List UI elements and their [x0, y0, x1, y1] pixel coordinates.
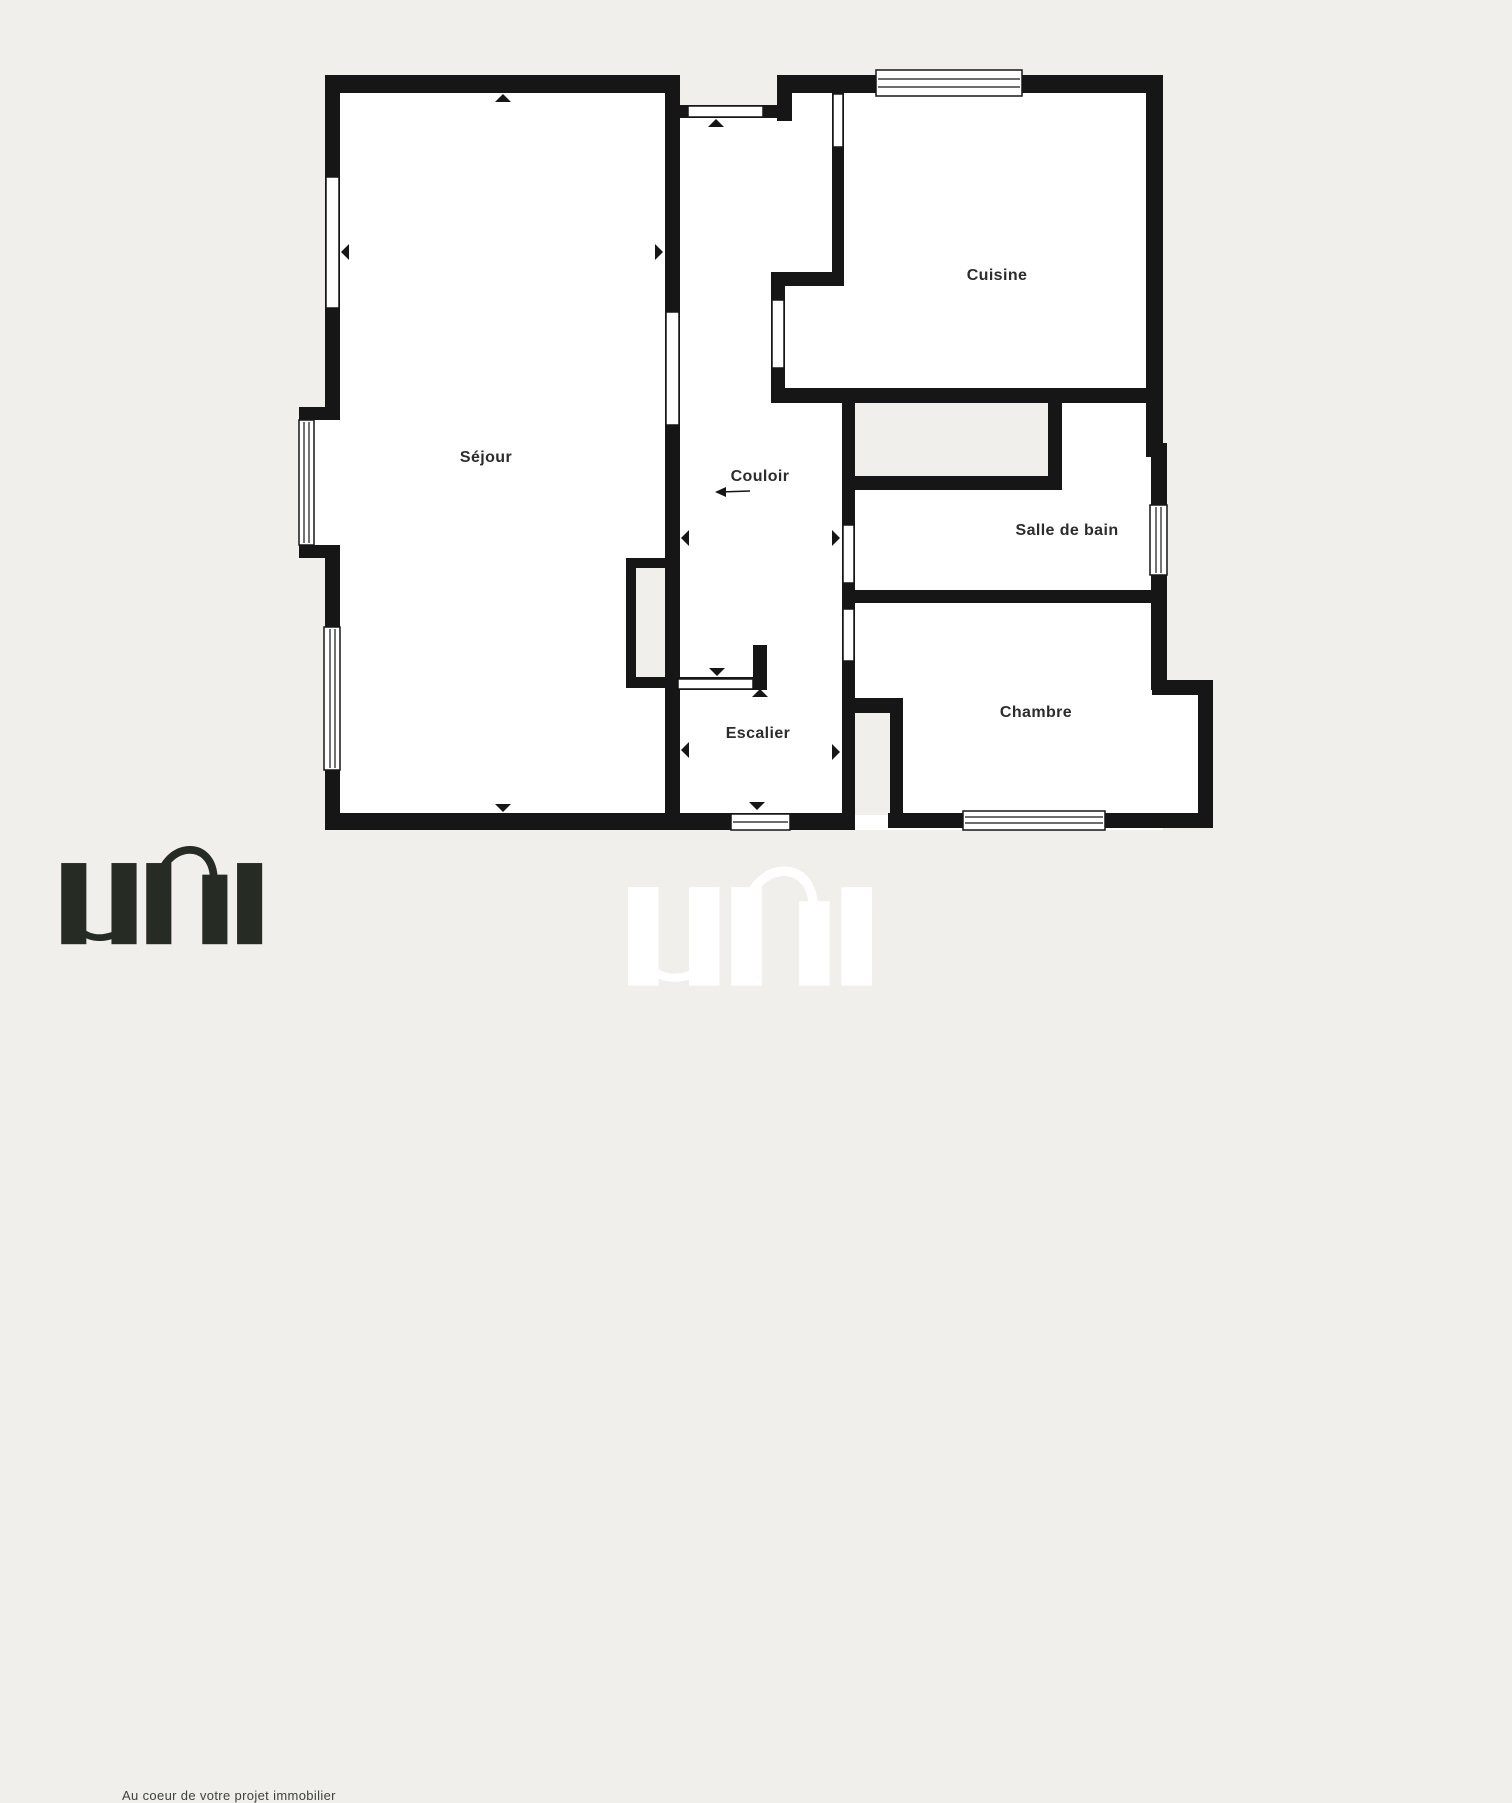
window-symbol-salle-de-bain [1150, 505, 1167, 575]
wall-closet-left [626, 558, 636, 688]
wall-couloir-right-lower [842, 398, 855, 813]
room-label-chambre: Chambre [1000, 704, 1072, 722]
door-opening-escalier [678, 679, 753, 689]
room-fill-areas [299, 75, 1213, 830]
agency-logo: uni Au coeur de votre projet immobilier [60, 836, 275, 950]
wall-escalier-stub [753, 645, 767, 690]
wall-closet-top [626, 558, 667, 568]
door-opening-salle-de-bain [843, 525, 854, 583]
floor-plan-page: Séjour Couloir Cuisine Salle de bain Cha… [0, 0, 1512, 1000]
door-opening-chambre [843, 609, 854, 661]
window-symbol-chambre [963, 811, 1105, 830]
wall-chambre-notch-top [842, 698, 903, 713]
wall-cuisine-jog [771, 272, 844, 286]
watermark-uni-glyphs [628, 854, 886, 993]
wall-shaft-right [1048, 398, 1062, 478]
room-label-couloir: Couloir [731, 468, 790, 486]
door-opening-cuisine-ext [772, 300, 784, 368]
chambre-notch-void [855, 711, 890, 815]
wall-chambre-right-upper [1151, 590, 1167, 690]
door-opening-entry [688, 106, 763, 117]
wall-closet-bottom [626, 677, 667, 688]
wall-bay-top [299, 407, 340, 420]
logo-uni-glyphs [60, 836, 275, 950]
entry-notch-void [678, 75, 777, 107]
door-opening-sejour-couloir [666, 312, 679, 425]
wall-chambre-right-lower [1198, 680, 1213, 828]
watermark-logo: uni [628, 854, 886, 993]
shaft-void [855, 398, 1048, 478]
window-symbol-bay [299, 420, 314, 545]
wall-sejour-couloir [665, 75, 680, 830]
wall-cuisine-bottom [771, 388, 1163, 403]
agency-tagline: Au coeur de votre projet immobilier [122, 1788, 336, 1803]
closet-void [636, 568, 665, 677]
wall-chambre-notch-right [890, 713, 903, 818]
wall-right-upper [1146, 75, 1163, 447]
door-opening-cuisine [833, 94, 843, 147]
room-label-cuisine: Cuisine [967, 267, 1028, 285]
window-symbol-cuisine [876, 70, 1022, 96]
wall-bay-bottom [299, 545, 340, 558]
wall-shaft-bottom [842, 476, 1062, 490]
wall-sdb-bottom [842, 590, 1155, 603]
room-label-escalier: Escalier [726, 725, 791, 743]
window-symbol-sejour-lower [324, 627, 340, 770]
room-label-salle-de-bain: Salle de bain [1015, 522, 1118, 540]
wall-sejour-top [325, 75, 680, 93]
room-label-sejour: Séjour [460, 449, 512, 467]
window-symbol-sejour-upper [326, 177, 339, 308]
